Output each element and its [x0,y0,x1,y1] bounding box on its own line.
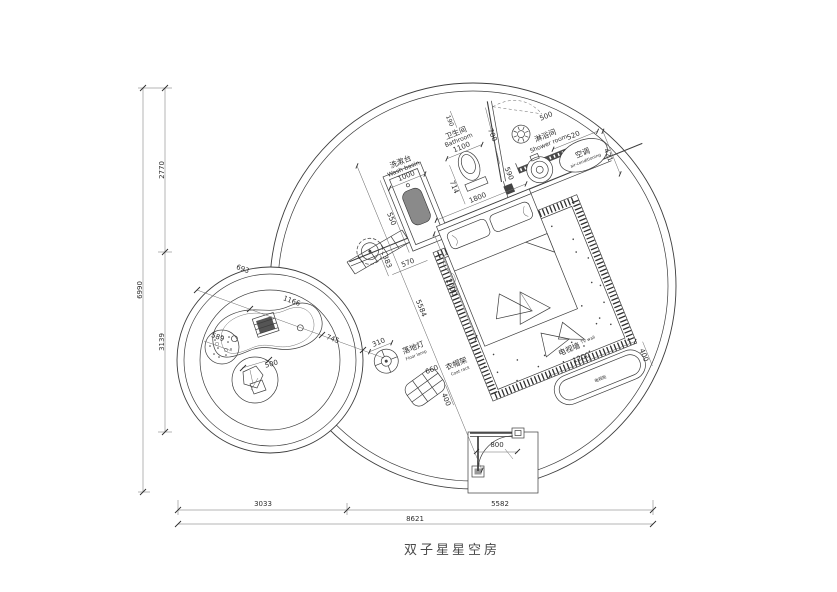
dim-3033: 3033 [254,500,272,508]
dim-6990: 6990 [136,281,144,299]
dim-800: 800 [490,441,503,449]
floorplan-drawing: 693 1166 745 589 500 800 [0,0,837,592]
dim-2770: 2770 [158,161,166,179]
drawing-title: 双子星星空房 [404,542,500,558]
floorplan-canvas: 693 1166 745 589 500 800 [0,0,837,592]
entry-vestibule: 800 [468,428,538,493]
dim-3139: 3139 [158,333,166,351]
dim-8621: 8621 [406,515,424,523]
dim-5582: 5582 [491,500,509,508]
door-hinge-post [512,428,524,438]
